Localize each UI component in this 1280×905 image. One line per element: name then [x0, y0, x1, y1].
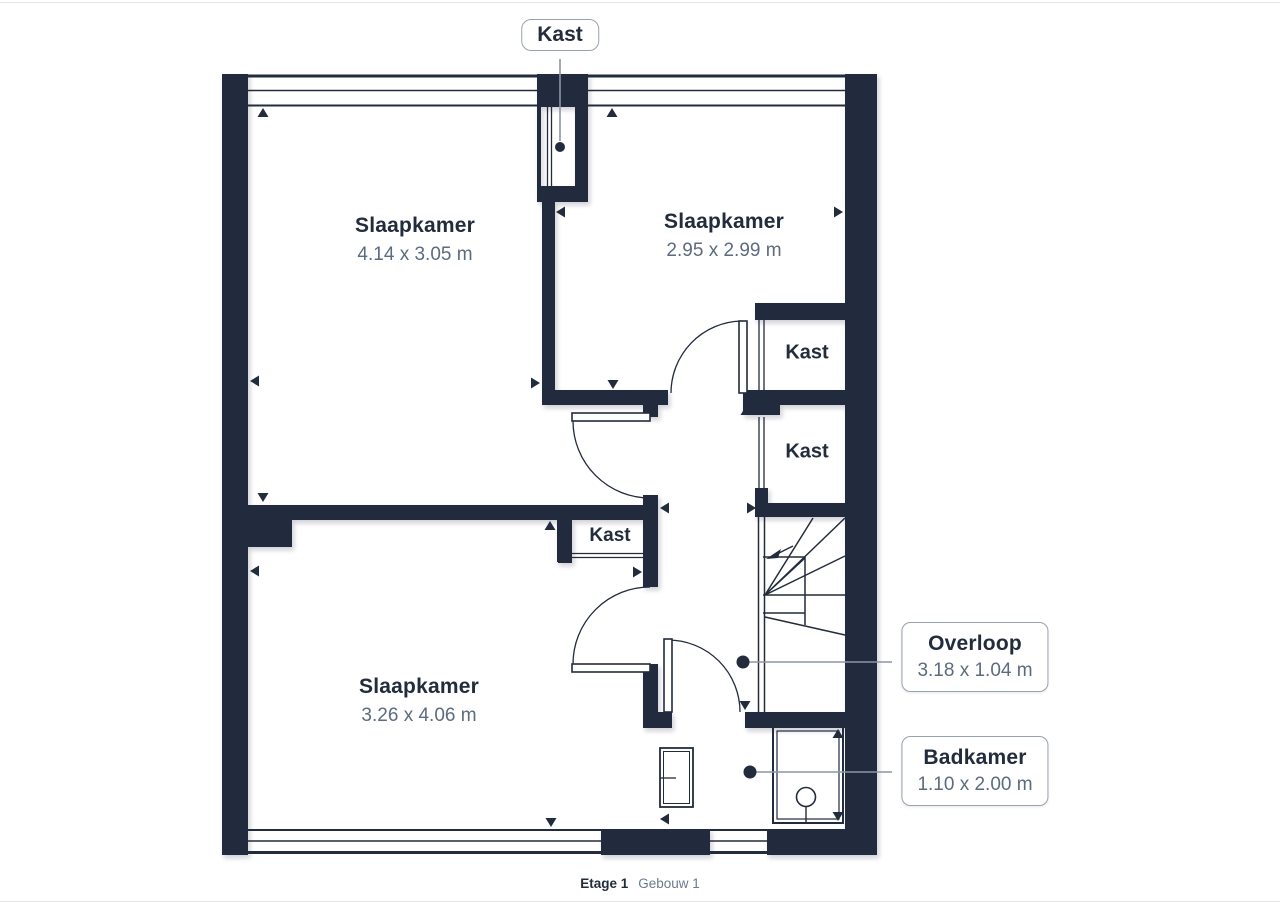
room-dimensions: 3.26 x 4.06 m [359, 702, 479, 730]
room-name: Overloop [917, 629, 1032, 658]
bathroom-north-wall [745, 712, 845, 728]
callout-badkamer: Badkamer 1.10 x 2.00 m [901, 736, 1048, 806]
shower-drain-icon [797, 788, 816, 807]
arrow-down-bathroom [833, 812, 844, 821]
label-kast-right-2: Kast [785, 441, 828, 464]
arrow-left-bathroom [660, 814, 669, 825]
closet-right-1-door [759, 320, 764, 390]
floor-caption: Etage 1Gebouw 1 [580, 876, 700, 891]
arrow-up-bathroom [833, 729, 844, 738]
floor-level: Etage 1 [580, 876, 628, 891]
bedroom3-door-leaf [572, 664, 650, 672]
closet-right-2-door [759, 417, 764, 488]
arrow-down-hall [740, 701, 751, 710]
stairs-edge-lines [759, 517, 765, 712]
arrow-left-bedroom3 [250, 566, 259, 577]
top-closet-door [548, 107, 552, 186]
room-dimensions: 2.95 x 2.99 m [664, 237, 784, 265]
room-dimensions: 4.14 x 3.05 m [355, 241, 475, 269]
arrow-left-bedroom1 [250, 376, 259, 387]
room-name: Badkamer [917, 743, 1032, 772]
bedroom2-door-arc [671, 321, 741, 393]
callout-overloop: Overloop 3.18 x 1.04 m [901, 622, 1048, 692]
mid-closet-north-wall [572, 505, 653, 520]
arrow-right-bedroom3 [633, 567, 642, 578]
leader-dot-top-closet [555, 142, 565, 152]
arrow-down-bedroom3 [546, 818, 557, 827]
arrow-right-bedroom2 [834, 207, 843, 218]
room-name: Slaapkamer [359, 672, 479, 702]
arrow-up-bedroom3 [545, 521, 556, 530]
bedroom1-door-arc [573, 421, 650, 498]
top-closet-west-wall [537, 107, 541, 186]
bedroom2-door-leaf [739, 321, 747, 393]
arrow-right-bedroom1 [531, 378, 540, 389]
shower-tray-outer [773, 727, 843, 823]
wall-between-left-bedrooms [248, 505, 557, 520]
wall-between-top-bedrooms [542, 188, 555, 390]
room-label-slaapkamer-3: Slaapkamer 3.26 x 4.06 m [359, 672, 479, 730]
arrow-left-hall [660, 503, 669, 514]
floor-plan-page: Slaapkamer 4.14 x 3.05 m Slaapkamer 2.95… [0, 0, 1280, 905]
chimney-block [248, 505, 292, 547]
arrow-right-hall [747, 503, 756, 514]
hall-west-wall-low [643, 664, 658, 728]
label-kast-middle: Kast [589, 525, 630, 547]
arrow-up-bedroom1 [258, 108, 269, 117]
label-kast-right-1: Kast [785, 342, 828, 365]
room-label-slaapkamer-1: Slaapkamer 4.14 x 3.05 m [355, 211, 475, 269]
leader-dot-overloop [737, 656, 750, 669]
bedroom3-door-arc [573, 587, 650, 664]
closet-right-1-north-wall [755, 303, 877, 320]
stairs [759, 517, 846, 712]
bedroom2-south-wall-west [542, 390, 668, 405]
outer-wall-left [222, 74, 248, 855]
walls [222, 74, 877, 855]
room-name: Slaapkamer [664, 207, 784, 237]
arrow-down-bedroom1 [258, 493, 269, 502]
arrow-left-bedroom2 [556, 207, 565, 218]
bedroom2-south-wall-east [743, 390, 877, 405]
room-name: Slaapkamer [355, 211, 475, 241]
bedroom1-door-leaf [572, 413, 650, 421]
floor-plan-drawing [0, 0, 1280, 905]
top-wall-center-block [537, 74, 588, 107]
mid-closet-door-jamb [558, 552, 572, 563]
stairs-north-wall [755, 503, 845, 517]
arrow-down-bedroom2 [608, 380, 619, 389]
bathroom-door-leaf [664, 639, 672, 712]
arrow-up-bedroom2 [607, 108, 618, 117]
closet-right-2-south-jamb [755, 488, 768, 503]
room-label-slaapkamer-2: Slaapkamer 2.95 x 2.99 m [664, 207, 784, 265]
room-dimensions: 3.18 x 1.04 m [917, 658, 1032, 685]
outer-wall-right [845, 74, 877, 855]
room-dimensions: 1.10 x 2.00 m [917, 772, 1032, 799]
building-name: Gebouw 1 [638, 876, 700, 891]
bathroom-door-arc [668, 640, 740, 712]
callout-kast-top: Kast [521, 19, 599, 51]
leader-dot-badkamer [744, 766, 757, 779]
mid-closet-door [572, 554, 643, 558]
bathroom-north-wall-west [658, 712, 672, 728]
